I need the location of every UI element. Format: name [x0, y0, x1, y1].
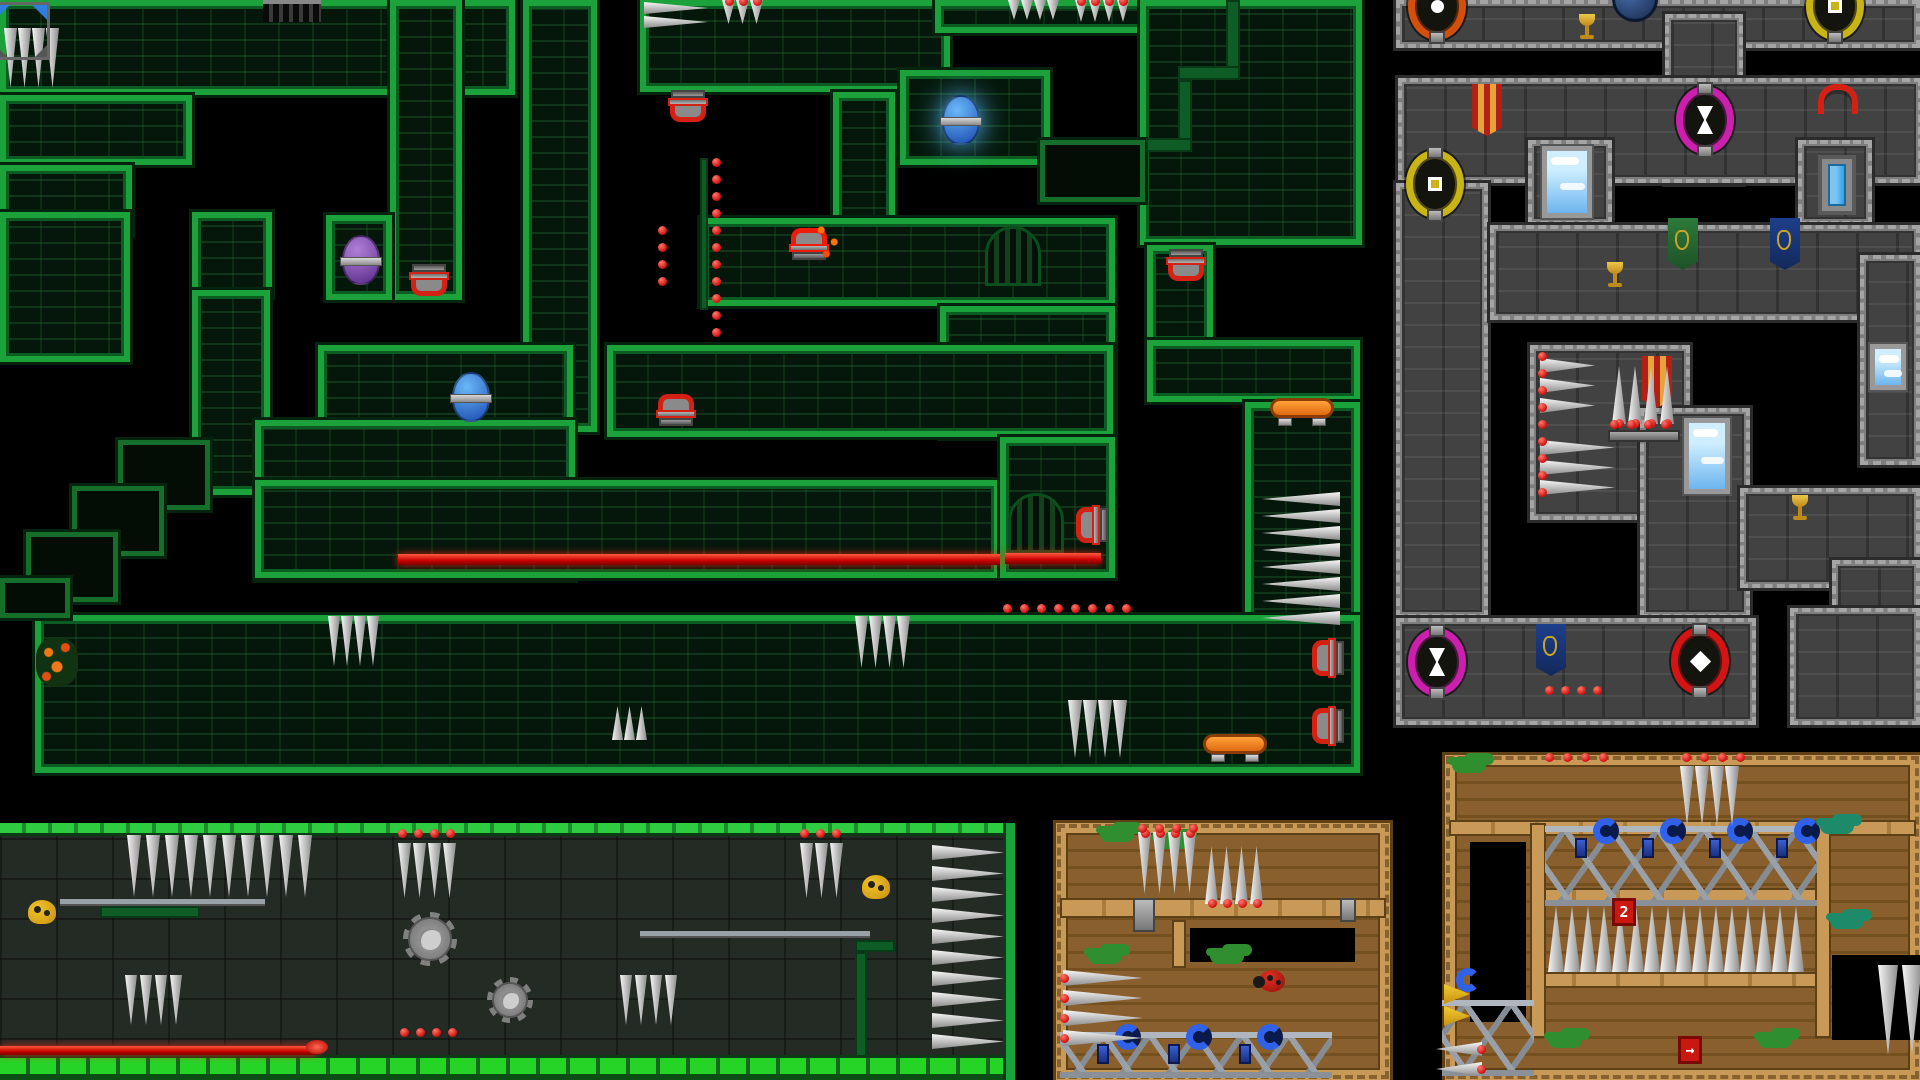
conveyor-belt: [0, 1055, 1015, 1080]
debris-specks: [816, 222, 842, 262]
spike: [1262, 594, 1340, 608]
spike-cap: [1238, 899, 1247, 908]
ring-red[interactable]: [1671, 627, 1729, 695]
spike: [1047, 0, 1059, 20]
red-dot: [1122, 604, 1131, 613]
spike: [367, 616, 379, 666]
pipe-green: [700, 158, 708, 310]
foliage: [1088, 948, 1122, 964]
bug-spot: [1276, 980, 1281, 985]
spike: [1235, 846, 1248, 904]
goblet: [1605, 262, 1625, 288]
spike-group: [1540, 440, 1615, 500]
spike: [1262, 509, 1340, 523]
red-dot: [712, 243, 721, 252]
spike: [184, 835, 198, 897]
spike-group: [1063, 970, 1143, 1050]
ring-orange[interactable]: [1408, 0, 1466, 40]
spike: [1628, 366, 1642, 424]
egg-blue[interactable]: [452, 372, 490, 422]
laser-beam: [0, 1046, 318, 1055]
turret: [1312, 637, 1346, 679]
goblet-base: [1793, 516, 1807, 520]
pipe-green: [1146, 138, 1192, 152]
level-viewport[interactable]: 2→: [0, 0, 1920, 1080]
red-dot: [448, 1028, 457, 1037]
egg-purple[interactable]: [342, 235, 380, 285]
maze-segment-outline: [1040, 140, 1145, 202]
door-slot-glass: [1828, 164, 1846, 206]
red-dot: [1545, 686, 1554, 695]
spike: [146, 835, 160, 897]
spike: [644, 16, 708, 28]
spike: [241, 835, 255, 897]
spike-group: [1878, 965, 1920, 1055]
spike: [1724, 906, 1740, 972]
turret-foot: [671, 90, 705, 98]
red-dot: [1610, 420, 1619, 429]
spike-group: [722, 0, 764, 24]
spike-group: [800, 843, 845, 898]
red-dot: [1538, 352, 1547, 361]
red-dot: [430, 829, 439, 838]
clamp-icon: [1593, 818, 1619, 844]
red-dot: [658, 260, 667, 269]
spike: [170, 975, 182, 1025]
red-dot: [712, 260, 721, 269]
clamp-icon: [1257, 1024, 1283, 1050]
red-dot: [1538, 403, 1547, 412]
spike: [1692, 906, 1708, 972]
turret-broken: [788, 228, 830, 262]
egg-band[interactable]: [940, 117, 982, 126]
spike: [398, 843, 411, 898]
egg-band[interactable]: [450, 394, 492, 403]
spike: [155, 975, 167, 1025]
red-dot: [1138, 824, 1147, 833]
turret-foot: [1336, 709, 1344, 743]
bug-spot: [34, 906, 41, 913]
ring-magenta[interactable]: [1676, 86, 1734, 154]
spike: [1063, 1030, 1143, 1046]
spike: [1680, 766, 1694, 826]
banner-rune: [1675, 230, 1689, 250]
spike: [1756, 906, 1772, 972]
spike: [636, 706, 647, 740]
spike-group: [127, 835, 317, 897]
foliage: [1452, 757, 1486, 773]
banner-rune: [1543, 636, 1557, 656]
spike: [222, 835, 236, 897]
red-dot: [712, 294, 721, 303]
spike: [932, 1013, 1004, 1028]
maze-segment-green: [1147, 340, 1360, 402]
clamp-pin: [1709, 838, 1721, 858]
spike-group: [1436, 1062, 1482, 1076]
turret-head: [1076, 507, 1092, 543]
bug-spot: [1267, 975, 1273, 981]
red-dot: [1538, 471, 1547, 480]
spike: [1262, 560, 1340, 574]
sign-flag: 2: [1612, 898, 1636, 926]
red-dot: [398, 829, 407, 838]
spike: [1540, 358, 1595, 373]
maze-segment-green: [192, 212, 272, 297]
spike: [1436, 1042, 1482, 1056]
platform-body[interactable]: [1270, 398, 1334, 418]
clamp-icon: [1186, 1024, 1212, 1050]
red-dot: [712, 209, 721, 218]
maze-segment-green: [1140, 0, 1362, 245]
spike: [413, 843, 426, 898]
maze-segment-outline: [0, 578, 70, 618]
red-dot: [414, 829, 423, 838]
spike: [1612, 366, 1626, 424]
turret-base: [668, 98, 708, 106]
platform-body[interactable]: [1203, 734, 1267, 754]
turret: [1165, 247, 1207, 281]
bug-spot: [44, 910, 50, 916]
spike: [932, 929, 1004, 944]
spike: [932, 866, 1004, 881]
platform-foot[interactable]: [1312, 418, 1326, 426]
red-dot: [1599, 753, 1608, 762]
spike: [815, 843, 828, 898]
spike: [1138, 832, 1151, 894]
spike: [328, 616, 340, 666]
clamp-pin: [1239, 1044, 1251, 1064]
pipe-green: [100, 906, 200, 918]
spike: [1772, 906, 1788, 972]
wood-post: [1815, 823, 1831, 1038]
cloud: [1560, 183, 1585, 190]
cloud: [1884, 370, 1902, 377]
spike-cap: [1477, 1045, 1486, 1054]
red-dot: [1581, 753, 1590, 762]
banner-blue: [1536, 624, 1566, 676]
red-dot: [1071, 604, 1080, 613]
spike: [1083, 700, 1097, 758]
spike-group: [1138, 832, 1198, 894]
spike: [1540, 480, 1615, 495]
laser-beam: [1005, 553, 1101, 564]
arch-grate: [985, 226, 1041, 286]
red-dot: [1037, 604, 1046, 613]
ring-clamp[interactable]: [1697, 145, 1713, 158]
spike: [1644, 906, 1660, 972]
spike: [1580, 906, 1596, 972]
red-dot: [658, 226, 667, 235]
ring-clamp[interactable]: [1427, 209, 1443, 222]
gear-wheel: [403, 912, 457, 966]
bug-spot: [878, 885, 884, 891]
goblet: [1790, 495, 1810, 521]
red-dot: [1054, 604, 1063, 613]
spike: [665, 975, 677, 1025]
spike: [1676, 906, 1692, 972]
turret-foot: [1169, 249, 1203, 257]
red-dot: [1105, 604, 1114, 613]
spike: [1262, 543, 1340, 557]
turret-foot: [1100, 508, 1108, 542]
turret: [667, 88, 709, 122]
spike-group: [1205, 846, 1265, 904]
spike-group: [620, 975, 680, 1025]
spike-group: [1075, 0, 1131, 22]
splatter-blob: [36, 638, 78, 686]
spike: [165, 835, 179, 897]
spike: [1262, 492, 1340, 506]
spike: [260, 835, 274, 897]
spike: [620, 975, 632, 1025]
spike: [1878, 965, 1898, 1055]
vent-grille: [263, 0, 321, 22]
spike-cap: [1477, 1065, 1486, 1074]
spike-cap: [1060, 1034, 1069, 1043]
ring-clamp[interactable]: [1429, 31, 1445, 44]
turret-base: [1166, 257, 1206, 265]
spike: [1220, 846, 1233, 904]
spike: [279, 835, 293, 897]
red-dot: [1538, 454, 1547, 463]
cloud: [1551, 157, 1579, 165]
ring-symbol-square[interactable]: [1828, 0, 1842, 13]
foliage: [1820, 818, 1854, 834]
egg-band[interactable]: [340, 257, 382, 266]
spike: [1063, 990, 1143, 1006]
red-dot: [832, 829, 841, 838]
platform-foot[interactable]: [1278, 418, 1292, 426]
spike: [1205, 846, 1218, 904]
goblet-stem: [1585, 25, 1589, 35]
red-dot: [1155, 824, 1164, 833]
spike: [897, 616, 910, 668]
ring-symbol-square[interactable]: [1428, 177, 1442, 191]
goblet-stem: [1613, 273, 1617, 283]
gear-hub: [419, 928, 441, 950]
ring-symbol-dot[interactable]: [1431, 0, 1444, 13]
red-dot: [416, 1028, 425, 1037]
spike: [932, 950, 1004, 965]
spike: [1708, 906, 1724, 972]
foliage: [1210, 948, 1244, 964]
maze-segment-green: [0, 212, 130, 362]
spike: [1540, 378, 1595, 393]
red-dot: [400, 1028, 409, 1037]
red-dot: [1538, 488, 1547, 497]
spike: [800, 843, 813, 898]
spike-cap: [1223, 899, 1232, 908]
sign-flag: →: [1678, 1036, 1702, 1064]
spike: [1660, 906, 1676, 972]
spike: [932, 992, 1004, 1007]
red-dot: [1538, 369, 1547, 378]
red-dot: [1561, 686, 1570, 695]
cloud: [1879, 355, 1899, 363]
red-dot: [800, 829, 809, 838]
turret-head: [1312, 708, 1328, 744]
metal-rail: [60, 899, 265, 904]
spike: [1153, 832, 1166, 894]
wood-post: [1172, 920, 1186, 968]
moving-platform: [1203, 734, 1267, 760]
red-dot: [712, 192, 721, 201]
arch-grate: [1008, 493, 1064, 553]
spike-group: [1262, 492, 1340, 628]
turret-base: [1328, 706, 1336, 746]
egg-blue[interactable]: [942, 95, 980, 145]
red-dot: [1538, 420, 1547, 429]
spike: [1262, 611, 1340, 625]
spike: [883, 616, 896, 668]
goblet: [1577, 14, 1597, 40]
pipe-green: [855, 940, 895, 952]
spike-group: [1548, 906, 1804, 972]
door-slot: [1818, 155, 1856, 215]
foliage: [1100, 826, 1134, 842]
turret-head: [411, 280, 447, 296]
spike: [612, 706, 623, 740]
turret-base: [656, 410, 696, 418]
spike: [428, 843, 441, 898]
red-dot: [1627, 420, 1636, 429]
spike: [1436, 1062, 1482, 1076]
spike-cap: [1060, 994, 1069, 1003]
clamp-pin: [1168, 1044, 1180, 1064]
spike: [298, 835, 312, 897]
red-dot: [1189, 824, 1198, 833]
laser-emitter: [306, 1040, 328, 1054]
spike-group: [1008, 0, 1060, 20]
spike-group: [855, 616, 911, 668]
spike: [354, 616, 366, 666]
ring-yellow[interactable]: [1806, 0, 1864, 40]
spike: [1262, 526, 1340, 540]
spike: [1540, 440, 1615, 455]
spike: [1063, 1010, 1143, 1026]
turret-base: [1328, 638, 1336, 678]
spike: [1168, 832, 1181, 894]
spike: [869, 616, 882, 668]
red-dot: [1545, 753, 1554, 762]
ring-clamp[interactable]: [1697, 82, 1713, 95]
clamp-icon: [1794, 818, 1820, 844]
red-dot: [658, 243, 667, 252]
clock-item[interactable]: [0, 2, 50, 60]
red-dot: [1577, 686, 1586, 695]
red-dot: [1593, 686, 1602, 695]
red-dot: [712, 175, 721, 184]
spike: [1262, 577, 1340, 591]
spike-group: [644, 2, 708, 30]
red-dot: [446, 829, 455, 838]
spike-cap: [1208, 899, 1217, 908]
ring-clamp[interactable]: [1692, 686, 1708, 699]
sky-window: [1684, 418, 1730, 494]
maze-segment-green: [700, 218, 1115, 306]
spike: [932, 908, 1004, 923]
spike-cap: [1060, 1014, 1069, 1023]
spike-cap: [739, 0, 748, 6]
spike: [1695, 766, 1709, 826]
ring-magenta[interactable]: [1408, 628, 1466, 696]
red-dot: [712, 277, 721, 286]
bug-head: [1253, 976, 1265, 988]
spike-group: [1068, 700, 1128, 758]
red-dot: [1538, 386, 1547, 395]
green-wall: [1003, 823, 1015, 1080]
sky-window: [1542, 146, 1592, 218]
spike: [635, 975, 647, 1025]
red-dot: [816, 829, 825, 838]
spike: [1068, 700, 1082, 758]
spike: [1113, 700, 1127, 758]
spike: [932, 887, 1004, 902]
maze-segment-green: [0, 95, 192, 165]
turret-head: [670, 106, 706, 122]
spike: [1564, 906, 1580, 972]
maze-segment-stone: [1790, 608, 1920, 725]
ring-clamp[interactable]: [1427, 146, 1443, 159]
bug-spot: [868, 881, 875, 888]
clamp-pin: [1642, 838, 1654, 858]
turret-head: [658, 394, 694, 410]
torch-bracket: [1818, 84, 1858, 114]
pipe-green: [1178, 66, 1240, 80]
maze-segment-stone: [1396, 183, 1488, 618]
turret: [1312, 705, 1346, 747]
clamp-icon: [1456, 968, 1480, 992]
turret: [655, 394, 697, 428]
red-dot: [658, 277, 667, 286]
spike: [1902, 965, 1920, 1055]
ring-clamp[interactable]: [1692, 623, 1708, 636]
black-notch: [1470, 842, 1526, 1022]
spike: [1596, 906, 1612, 972]
spike: [1710, 766, 1724, 826]
red-dot: [1736, 753, 1745, 762]
truss-frame: [1545, 826, 1817, 906]
cloud: [1693, 429, 1718, 437]
platform-foot[interactable]: [1211, 754, 1225, 762]
spike: [1548, 906, 1564, 972]
ring-clamp[interactable]: [1827, 31, 1843, 44]
foliage: [1830, 913, 1864, 929]
goblet-stem: [1798, 506, 1802, 516]
ring-clamp[interactable]: [1429, 687, 1445, 700]
foliage: [1548, 1032, 1582, 1048]
red-dot: [712, 226, 721, 235]
ring-clamp[interactable]: [1429, 624, 1445, 637]
red-dot: [1538, 437, 1547, 446]
red-dot: [712, 328, 721, 337]
cloud: [1701, 457, 1724, 464]
spike: [1063, 970, 1143, 986]
stone-block: [1133, 898, 1155, 932]
red-dot: [712, 158, 721, 167]
goblet-base: [1580, 35, 1594, 39]
spike: [1660, 366, 1674, 424]
spike-group: [1680, 766, 1740, 826]
red-dot: [1003, 604, 1012, 613]
wood-beam: [1530, 972, 1830, 988]
ring-yellow[interactable]: [1406, 150, 1464, 218]
spike-group: [1612, 366, 1676, 424]
spike: [1540, 398, 1595, 413]
spike: [125, 975, 137, 1025]
spike-group: [932, 845, 1004, 1055]
platform-foot[interactable]: [1245, 754, 1259, 762]
